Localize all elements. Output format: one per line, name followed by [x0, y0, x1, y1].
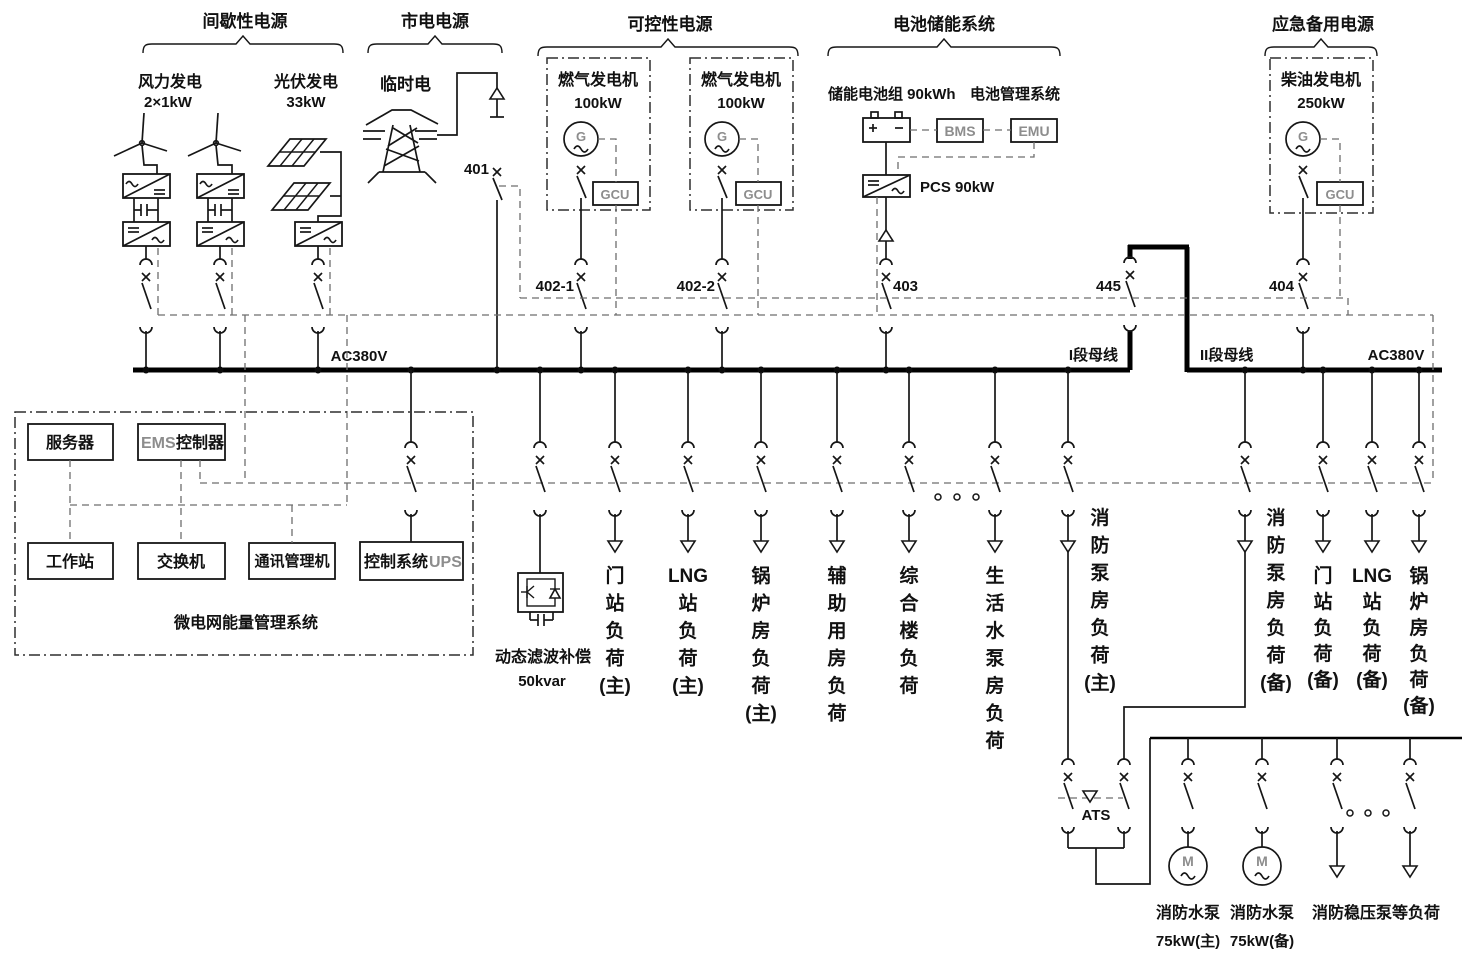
load-label-gate-backup: 门站负荷(备) — [1307, 564, 1339, 691]
breaker-filter — [534, 442, 546, 516]
gas1-name: 燃气发电机 — [558, 70, 638, 89]
load-label-complex: 综合楼负荷 — [899, 564, 919, 697]
breaker-fire-water-pump-main — [1182, 759, 1194, 833]
wind-label: 风力发电 — [138, 72, 202, 91]
load-label-lng-main: LNG站负荷(主) — [668, 566, 708, 697]
breaker-fire-pump-main — [1062, 442, 1074, 516]
wind-generation: 风力发电 2×1kW — [114, 72, 244, 370]
stabilizer-loads-label: 消防稳压泵等负荷 — [1312, 903, 1440, 922]
more-feeders-ellipsis — [935, 494, 979, 500]
wind-converter-1 — [123, 174, 170, 246]
ats-selector-icon — [1083, 791, 1097, 802]
gas-generator-2: 燃气发电机 100kW G GCU 402-2 — [677, 58, 793, 370]
load-arrow-icon — [1330, 866, 1344, 877]
load-arrow-icon — [681, 541, 695, 552]
load-arrow-icon — [1316, 541, 1330, 552]
more-feeders-ellipsis — [1347, 810, 1389, 816]
breaker-404-label: 404 — [1269, 278, 1295, 295]
gas1-rating: 100kW — [574, 95, 622, 112]
diesel-switch — [1299, 166, 1308, 198]
ems-system: 服务器 EMS 控制器 工作站 交换机 通讯管理机 控制系统 UPS 微电网能量… — [15, 370, 473, 655]
bus-section-2-label: II段母线 — [1200, 346, 1253, 364]
wind-rating: 2×1kW — [144, 94, 193, 111]
breaker-wind-1 — [140, 259, 152, 333]
pv-label: 光伏发电 — [273, 72, 338, 91]
load-label-lng-backup: LNG站负荷(备) — [1352, 566, 1392, 691]
battery-storage: 储能电池组 90kWh 电池管理系统 BMS EMU PCS 90kW 403 — [828, 85, 1060, 370]
group-headers: 间歇性电源 市电电源 可控性电源 电池储能系统 应急备用电源 — [143, 11, 1377, 56]
thyristor-filter-icon — [521, 579, 560, 606]
ems-title: 微电网能量管理系统 — [173, 613, 318, 632]
breaker-pv — [312, 259, 324, 333]
breaker-load — [989, 442, 1001, 516]
gas1-switch — [577, 166, 586, 198]
ats-breaker-main — [1062, 759, 1074, 833]
gas-generator-1: 燃气发电机 100kW G GCU 402-1 — [536, 58, 650, 370]
transmission-tower-icon — [363, 110, 438, 183]
breaker-401-label: 401 — [464, 161, 489, 178]
bus-voltage-right: AC380V — [1368, 347, 1425, 364]
bus1-load-feeders: 门站负荷(主) LNG站负荷(主) 锅炉房负荷(主) 辅助用房负荷 综合楼负荷 — [599, 372, 1116, 759]
filter-name: 动态滤波补偿 — [495, 647, 591, 666]
load-label-gate-main: 门站负荷(主) — [599, 564, 631, 697]
breaker-stabilizer-pump — [1331, 759, 1343, 833]
ats-transfer-switch: ATS — [1058, 738, 1150, 884]
load-label-boiler-main: 锅炉房负荷(主) — [745, 564, 777, 725]
breaker-load — [755, 442, 767, 516]
ems-controller-prefix: EMS — [141, 435, 176, 452]
microgrid-one-line-diagram: 间歇性电源 市电电源 可控性电源 电池储能系统 应急备用电源 风力发电 2×1k… — [0, 0, 1466, 963]
pv-panel-icon — [268, 139, 330, 210]
breaker-load — [831, 442, 843, 516]
gas2-switch — [718, 166, 727, 198]
brace-battery-storage — [828, 39, 1060, 56]
emu-label: EMU — [1018, 123, 1049, 139]
ems-ups-label: UPS — [429, 554, 462, 571]
wind-turbine-icon — [188, 113, 241, 174]
breaker-load — [903, 442, 915, 516]
gas2-gcu-label: GCU — [744, 187, 773, 202]
gas2-gen-symbol: G — [717, 129, 727, 144]
breaker-fire-water-pump-backup — [1256, 759, 1268, 833]
breaker-445-label: 445 — [1096, 278, 1121, 295]
gas2-name: 燃气发电机 — [701, 70, 781, 89]
gas1-gen-symbol: G — [576, 129, 586, 144]
ems-communication-lines — [158, 139, 1433, 505]
brace-utility — [368, 36, 502, 53]
bus-voltage-left: AC380V — [331, 348, 388, 365]
breaker-403-label: 403 — [893, 278, 918, 295]
pcs-label: PCS 90kW — [920, 179, 995, 196]
battery-pack-label: 储能电池组 90kWh — [828, 85, 956, 103]
load-arrow-icon — [830, 541, 844, 552]
breaker-load — [609, 442, 621, 516]
brace-intermittent — [143, 36, 343, 53]
ems-workstation-label: 工作站 — [46, 552, 94, 571]
ats-breaker-backup — [1118, 759, 1130, 833]
diesel-generator: 柴油发电机 250kW G GCU 404 — [1269, 58, 1373, 370]
load-arrow-icon — [1365, 541, 1379, 552]
wind-turbine-icon — [114, 113, 167, 174]
ems-ups-prefix: 控制系统 — [364, 552, 428, 571]
pv-rating: 33kW — [286, 94, 326, 111]
fire-pump-bus: M 消防水泵 75kW(主) M 消防水泵 75kW(备) 消防稳压泵等负荷 — [1150, 738, 1462, 950]
bus2-load-feeders: 消防泵房负荷(备) 门站负荷(备) LNG站负荷(备) 锅炉房负荷(备) — [1124, 372, 1435, 759]
load-label-fire-pump-main: 消防泵房负荷(主) — [1084, 506, 1116, 694]
breaker-load — [1317, 442, 1329, 516]
bms-label: BMS — [944, 123, 975, 139]
header-emergency: 应急备用电源 — [1272, 14, 1374, 34]
gas2-rating: 100kW — [717, 95, 765, 112]
breaker-stabilizer-pump — [1404, 759, 1416, 833]
ems-comm-manager-label: 通讯管理机 — [254, 552, 329, 570]
breaker-403 — [880, 259, 892, 333]
ems-controller-label: 控制器 — [176, 433, 225, 452]
fire-pump-backup-rating: 75kW(备) — [1230, 932, 1294, 950]
fire-pump-main-name: 消防水泵 — [1156, 903, 1220, 922]
breaker-wind-2 — [214, 259, 226, 333]
load-arrow-icon — [1403, 866, 1417, 877]
load-arrow-icon — [1412, 541, 1426, 552]
diesel-gcu-label: GCU — [1326, 187, 1355, 202]
brace-emergency — [1265, 39, 1377, 56]
breaker-402-1-label: 402-1 — [536, 278, 574, 295]
filter-rating: 50kvar — [518, 673, 566, 690]
breaker-ups-feeder — [405, 442, 417, 516]
fire-pump-backup-name: 消防水泵 — [1230, 903, 1294, 922]
pv-generation: 光伏发电 33kW — [268, 72, 342, 370]
load-arrow-icon — [902, 541, 916, 552]
header-intermittent: 间歇性电源 — [203, 11, 288, 31]
diagram-canvas: 间歇性电源 市电电源 可控性电源 电池储能系统 应急备用电源 风力发电 2×1k… — [0, 0, 1466, 963]
breaker-fire-pump-backup — [1239, 442, 1251, 516]
plug-connector-icon — [490, 88, 504, 99]
breaker-load — [1366, 442, 1378, 516]
load-label-boiler-backup: 锅炉房负荷(备) — [1403, 564, 1435, 717]
load-arrow-icon — [608, 541, 622, 552]
filter-capacitor-icon — [530, 612, 553, 626]
pv-inverter — [295, 222, 342, 246]
load-arrow-icon — [988, 541, 1002, 552]
brace-controllable — [538, 39, 798, 56]
temporary-power-label: 临时电 — [380, 74, 431, 94]
pcs-converter — [863, 175, 910, 197]
header-controllable: 可控性电源 — [628, 14, 713, 34]
header-utility: 市电电源 — [401, 11, 469, 31]
motor-symbol: M — [1256, 853, 1268, 869]
breaker-402-1 — [575, 259, 587, 333]
pcs-flow-arrow-icon — [879, 230, 893, 241]
ems-switch-label: 交换机 — [157, 552, 205, 571]
motor-symbol: M — [1182, 853, 1194, 869]
diesel-gen-symbol: G — [1298, 129, 1308, 144]
load-arrow-icon — [1061, 541, 1075, 552]
breaker-404 — [1297, 259, 1309, 333]
load-label-aux-room: 辅助用房负荷 — [827, 564, 846, 725]
breaker-402-2-label: 402-2 — [677, 278, 715, 295]
gas1-gcu-label: GCU — [601, 187, 630, 202]
diesel-rating: 250kW — [1297, 95, 1345, 112]
dynamic-filter: 动态滤波补偿 50kvar — [495, 372, 591, 690]
breaker-401 — [493, 168, 502, 200]
load-label-fire-pump-backup: 消防泵房负荷(备) — [1260, 506, 1292, 694]
breaker-load — [1413, 442, 1425, 516]
ems-server-label: 服务器 — [46, 433, 95, 452]
utility-power: 临时电 401 — [363, 73, 504, 370]
breaker-445-tie — [1124, 257, 1136, 331]
fire-pump-main-rating: 75kW(主) — [1156, 932, 1220, 950]
breaker-402-2 — [716, 259, 728, 333]
battery-mgmt-label: 电池管理系统 — [970, 85, 1060, 103]
header-battery-storage: 电池储能系统 — [893, 14, 995, 34]
load-label-water-pump: 生活水泵房负荷 — [985, 564, 1005, 752]
breaker-load — [682, 442, 694, 516]
bus-section-1-label: I段母线 — [1069, 346, 1118, 364]
load-arrow-icon — [1238, 541, 1252, 552]
diesel-name: 柴油发电机 — [1280, 70, 1361, 89]
ats-label: ATS — [1082, 807, 1111, 824]
battery-icon — [863, 112, 910, 142]
wind-converter-2 — [197, 174, 244, 246]
load-arrow-icon — [754, 541, 768, 552]
